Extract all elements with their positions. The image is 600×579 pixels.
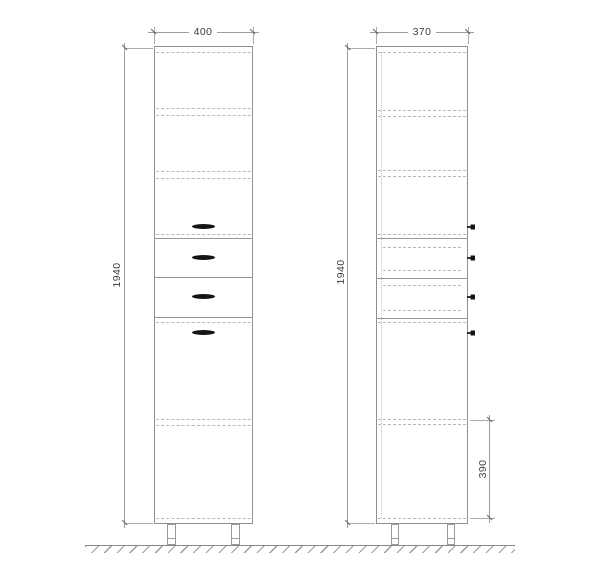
hidden-shelf-line bbox=[378, 110, 466, 111]
cabinet-leg bbox=[447, 524, 455, 545]
drawer-front-edge bbox=[376, 318, 468, 319]
cabinet-leg bbox=[167, 524, 176, 545]
side-plinth-label: 390 bbox=[477, 456, 489, 482]
hidden-drawer-box-line bbox=[383, 285, 461, 286]
extension-line bbox=[468, 27, 469, 44]
hidden-shelf-line bbox=[156, 171, 251, 172]
hidden-panel-line bbox=[156, 322, 251, 323]
side-handle-knob-icon bbox=[467, 224, 475, 230]
hidden-shelf-line bbox=[156, 419, 251, 420]
dimension-line bbox=[347, 43, 348, 528]
side-handle-knob-icon bbox=[467, 255, 475, 261]
hidden-shelf-line bbox=[156, 425, 251, 426]
hidden-panel-line bbox=[156, 234, 251, 235]
hidden-panel-line bbox=[378, 234, 466, 235]
drawer-front-edge bbox=[376, 238, 468, 239]
hidden-bottom-panel-line bbox=[378, 518, 466, 519]
hidden-shelf-line bbox=[156, 115, 251, 116]
hidden-shelf-line bbox=[378, 176, 466, 177]
hidden-door-back-line bbox=[381, 52, 382, 518]
extension-line bbox=[347, 523, 375, 524]
side-handle-knob-icon bbox=[467, 294, 475, 300]
hidden-top-panel-line bbox=[156, 52, 251, 53]
drawer-front-edge bbox=[154, 238, 253, 239]
side-handle-knob-icon bbox=[467, 330, 475, 336]
drawer-front-edge bbox=[154, 277, 253, 278]
side-width-label: 370 bbox=[408, 26, 436, 38]
drawer-handle-icon bbox=[192, 255, 215, 260]
extension-line bbox=[124, 523, 153, 524]
hidden-shelf-line bbox=[156, 108, 251, 109]
hidden-shelf-line bbox=[378, 170, 466, 171]
hidden-shelf-line bbox=[378, 419, 466, 420]
front-height-label: 1940 bbox=[111, 260, 123, 290]
hidden-bottom-panel-line bbox=[156, 518, 251, 519]
extension-line bbox=[253, 27, 254, 44]
cabinet-leg bbox=[391, 524, 399, 545]
leg-foot-line bbox=[392, 538, 398, 539]
extension-line bbox=[376, 27, 377, 44]
drawer-handle-icon bbox=[192, 294, 215, 299]
dimension-line bbox=[124, 43, 125, 528]
front-width-label: 400 bbox=[189, 26, 217, 38]
extension-line bbox=[347, 48, 375, 49]
hidden-drawer-box-line bbox=[383, 270, 461, 271]
leg-foot-line bbox=[448, 538, 454, 539]
hidden-drawer-box-line bbox=[383, 310, 461, 311]
dimension-line bbox=[489, 415, 490, 523]
drawer-front-edge bbox=[376, 278, 468, 279]
drawer-front-edge bbox=[154, 317, 253, 318]
hidden-shelf-line bbox=[378, 424, 466, 425]
drawing-canvas: 400 370 1940 1940 390 bbox=[0, 0, 600, 579]
front-view-cabinet bbox=[154, 46, 253, 524]
lower-door-handle-icon bbox=[192, 330, 215, 335]
ground-hatch bbox=[85, 546, 515, 553]
leg-foot-line bbox=[168, 538, 175, 539]
leg-foot-line bbox=[232, 538, 239, 539]
hidden-shelf-line bbox=[156, 178, 251, 179]
hidden-panel-line bbox=[378, 322, 466, 323]
side-height-label: 1940 bbox=[335, 257, 347, 287]
upper-door-handle-icon bbox=[192, 224, 215, 229]
hidden-top-panel-line bbox=[378, 52, 466, 53]
extension-line bbox=[154, 27, 155, 44]
cabinet-leg bbox=[231, 524, 240, 545]
hidden-drawer-box-line bbox=[383, 247, 461, 248]
hidden-shelf-line bbox=[378, 116, 466, 117]
extension-line bbox=[124, 48, 153, 49]
